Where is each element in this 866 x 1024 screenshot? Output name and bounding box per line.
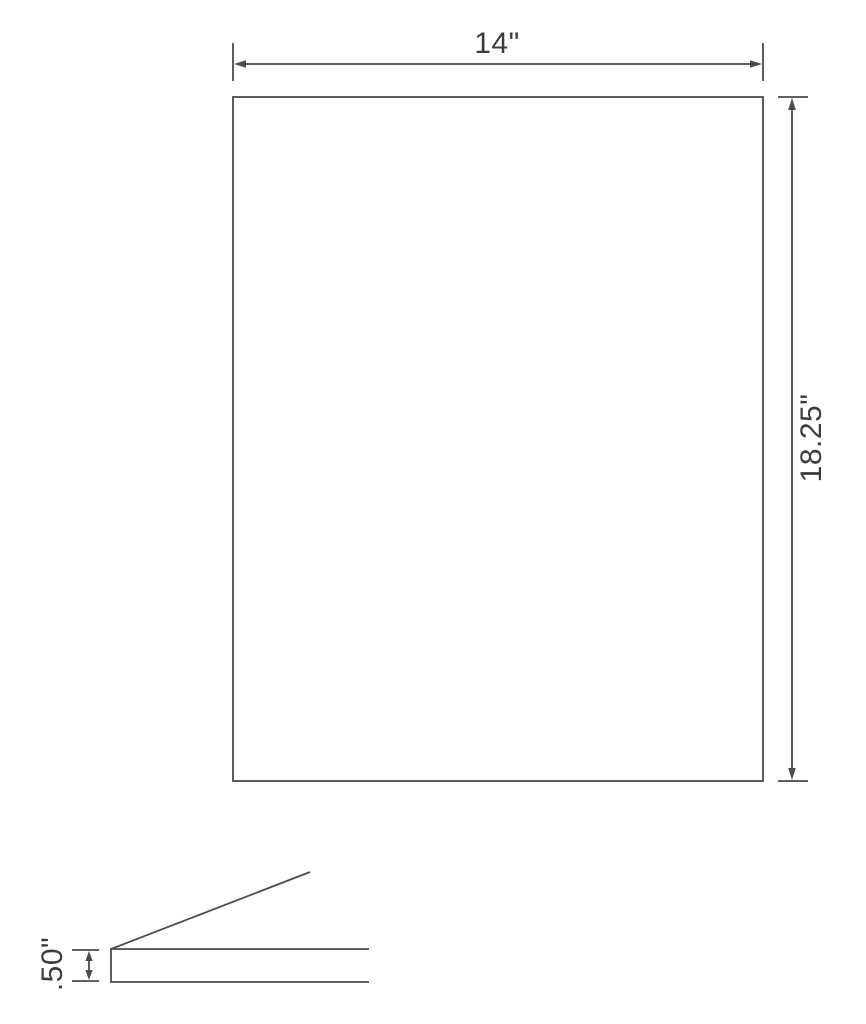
side-view-flap-line <box>111 872 310 949</box>
front-view-outline <box>233 97 763 781</box>
arrowhead-down-icon <box>788 768 796 780</box>
technical-drawing-canvas: 14" 18.25" .50" <box>0 0 866 1024</box>
height-dimension-label: 18.25" <box>797 394 827 483</box>
arrowhead-left-icon <box>234 60 246 68</box>
thickness-dimension-label: .50" <box>38 937 68 991</box>
side-view <box>111 872 369 982</box>
drawing-linework <box>0 0 866 1024</box>
arrowhead-down-icon <box>85 970 92 980</box>
arrowhead-up-icon <box>85 951 92 961</box>
side-view-slab-outline <box>111 949 369 982</box>
arrowhead-right-icon <box>750 60 762 68</box>
arrowhead-up-icon <box>788 98 796 110</box>
thickness-dimension <box>72 950 99 981</box>
width-dimension-label: 14" <box>397 29 597 59</box>
